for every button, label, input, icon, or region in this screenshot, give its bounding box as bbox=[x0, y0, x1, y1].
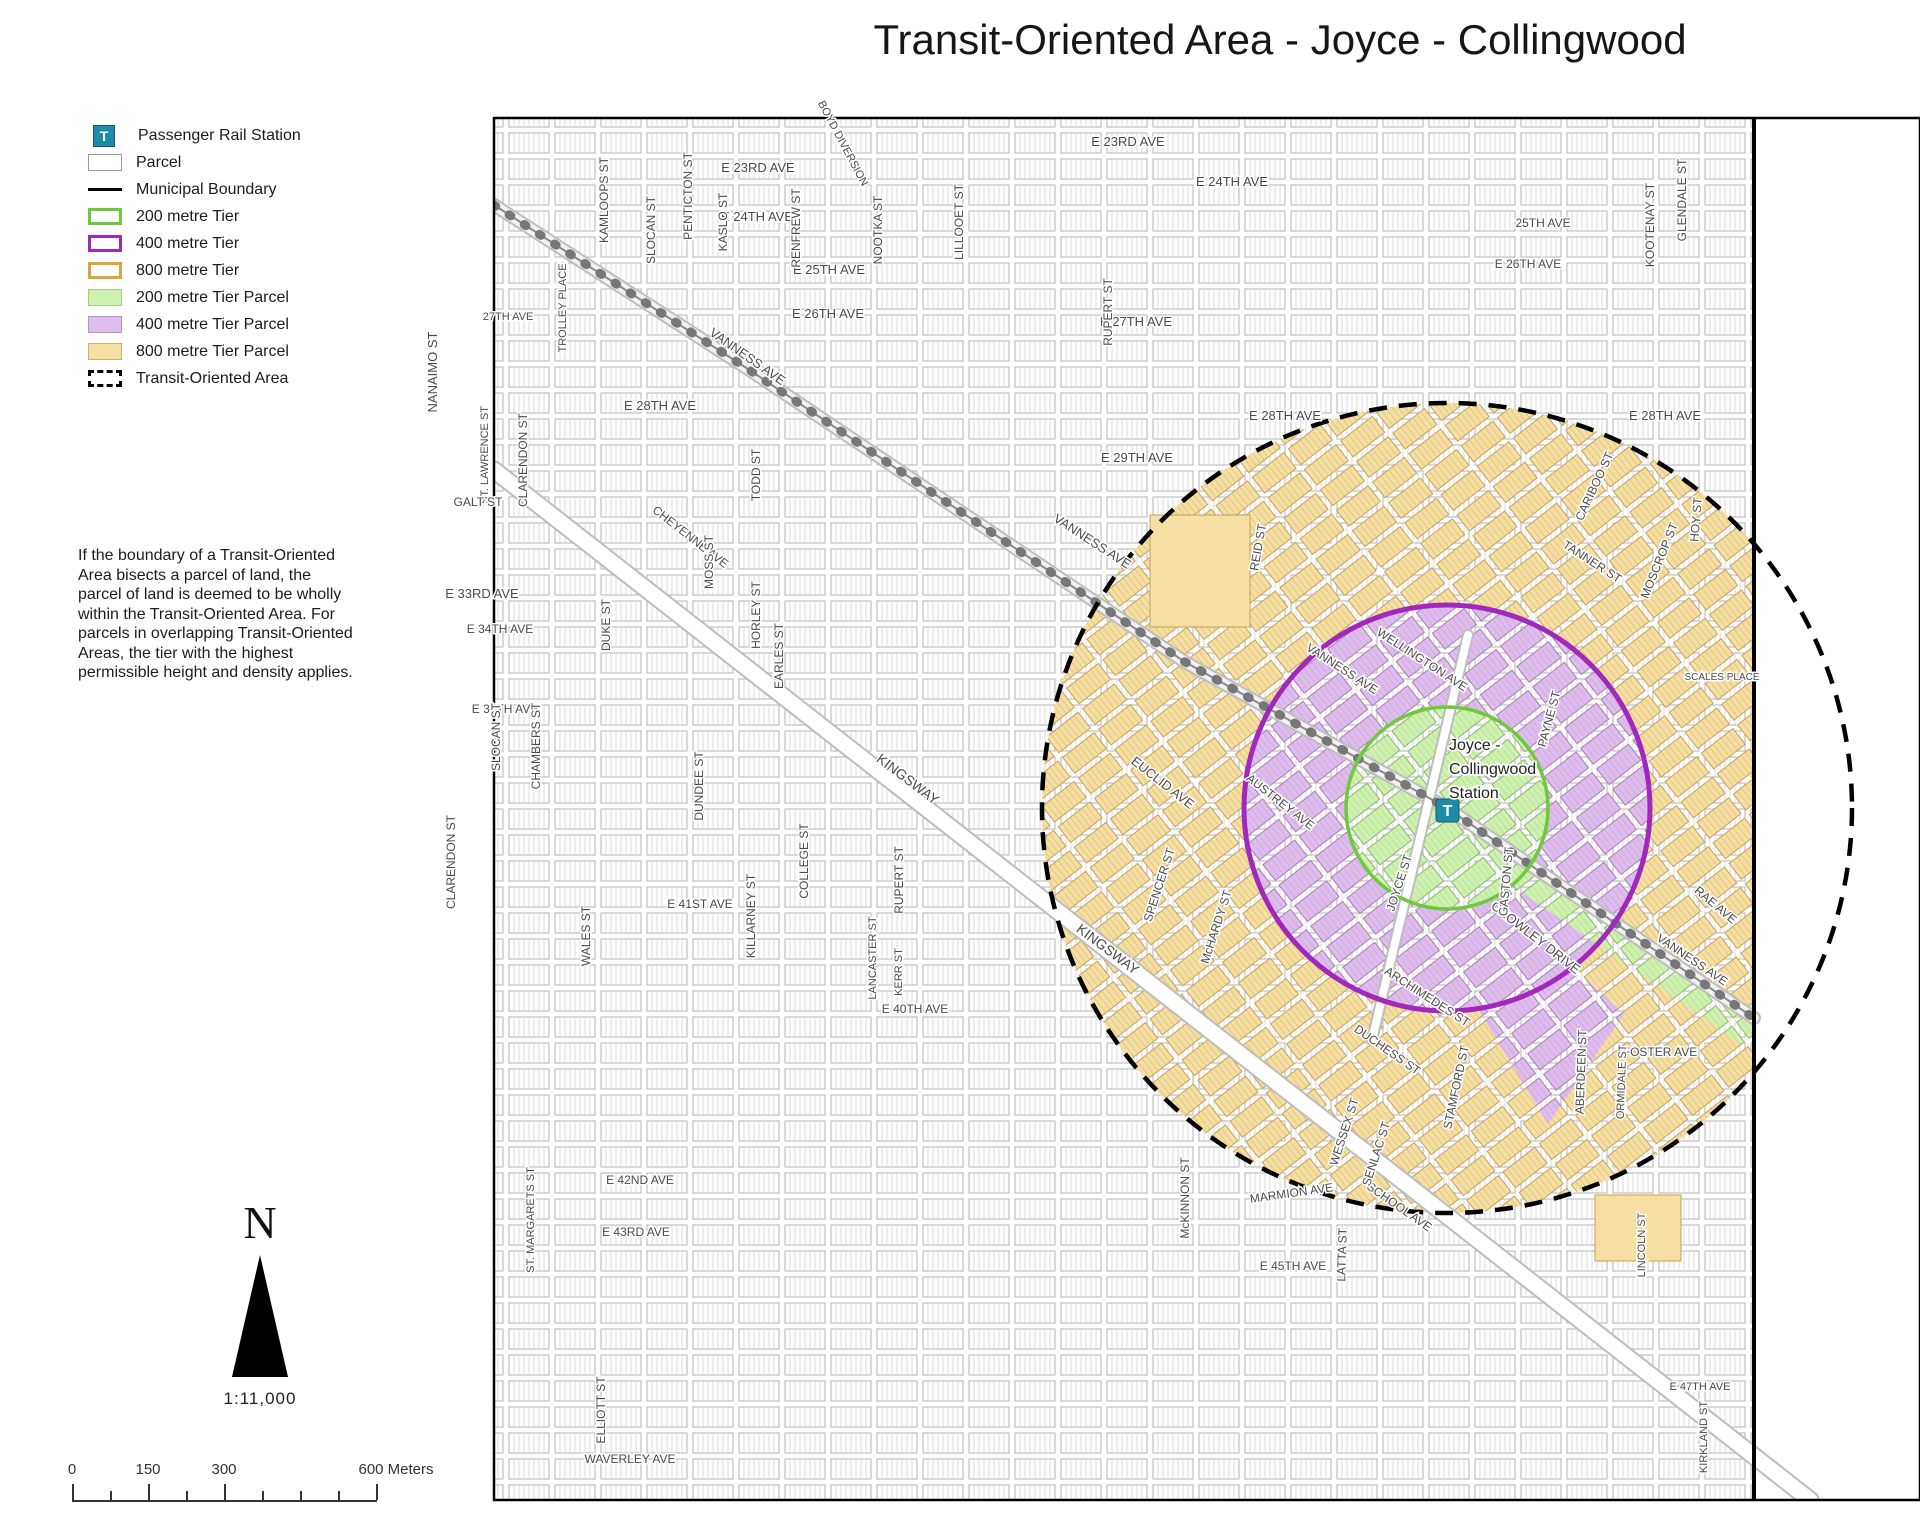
street-label: E 40TH AVE bbox=[882, 1002, 948, 1016]
street-label: E 23RD AVE bbox=[721, 160, 795, 175]
station-label-line: Collingwood bbox=[1449, 761, 1536, 778]
street-label: E 42ND AVE bbox=[606, 1173, 674, 1187]
street-label: PENTICTON ST bbox=[681, 151, 695, 239]
street-label: LILLOOET ST bbox=[952, 183, 966, 259]
street-label: 25TH AVE bbox=[1515, 216, 1570, 230]
street-label: FOSTER AVE bbox=[1623, 1045, 1697, 1059]
street-label: LANCASTER ST bbox=[867, 916, 879, 999]
street-label: ELLIOTT ST bbox=[594, 1376, 608, 1444]
street-label: WALES ST bbox=[579, 905, 593, 966]
street-label: E 28TH AVE bbox=[1629, 408, 1701, 423]
street-label: KIRKLAND ST bbox=[1698, 1401, 1710, 1473]
street-label: COLLEGE ST bbox=[797, 823, 811, 899]
street-label: KILLARNEY ST bbox=[744, 873, 758, 958]
street-label: E 24TH AVE bbox=[1196, 174, 1268, 189]
street-label: E 45TH AVE bbox=[1260, 1259, 1326, 1273]
street-label: LINCOLN ST bbox=[1636, 1212, 1648, 1277]
street-label: McKINNON ST bbox=[1178, 1157, 1192, 1239]
street-label: E 28TH AVE bbox=[1249, 408, 1321, 423]
street-label: SLOCAN ST bbox=[489, 702, 503, 771]
station-label-line: Joyce - bbox=[1449, 737, 1501, 754]
street-label: ST. MARGARETS ST bbox=[525, 1167, 537, 1273]
street-label: CHAMBERS ST bbox=[529, 702, 543, 789]
street-label: TROLLEY PLACE bbox=[557, 263, 569, 352]
street-label: E 26TH AVE bbox=[1495, 257, 1561, 271]
street-label: E 33RD AVE bbox=[445, 586, 519, 601]
street-label: E 26TH AVE bbox=[792, 306, 864, 321]
map-canvas[interactable]: E 23RD AVEE 23RD AVEE 24TH AVEE 24TH AVE… bbox=[0, 0, 1920, 1523]
street-label: GLENDALE ST bbox=[1675, 158, 1689, 241]
street-label: RUPERT ST bbox=[1101, 278, 1115, 346]
street-label: MOSS ST bbox=[702, 534, 716, 589]
street-label: CLARENDON ST bbox=[516, 412, 530, 507]
station-icon-letter: T bbox=[1443, 803, 1453, 820]
street-label: SCALES PLACE bbox=[1684, 672, 1759, 683]
station-label-line: Station bbox=[1449, 785, 1499, 802]
street-label: RENFREW ST bbox=[789, 188, 803, 268]
street-label: E 43RD AVE bbox=[602, 1225, 670, 1239]
street-label: E 34TH AVE bbox=[467, 622, 533, 636]
street-label: E 29TH AVE bbox=[1101, 450, 1173, 465]
street-label: HORLEY ST bbox=[749, 580, 763, 648]
street-label: E 41ST AVE bbox=[667, 897, 733, 911]
street-label: WAVERLEY AVE bbox=[585, 1452, 676, 1466]
street-label: KAMLOOPS ST bbox=[597, 156, 611, 243]
street-label: DUNDEE ST bbox=[692, 751, 706, 821]
street-label: GALT ST bbox=[454, 495, 504, 509]
street-label: E 25TH AVE bbox=[793, 262, 865, 277]
street-label: RUPERT ST bbox=[892, 846, 906, 914]
large-tan-parcel bbox=[1150, 515, 1250, 627]
street-label: EARLES ST bbox=[772, 622, 786, 689]
street-label: LATTA ST bbox=[1334, 1227, 1350, 1282]
street-label: E 28TH AVE bbox=[624, 398, 696, 413]
street-label: E 24TH AVE bbox=[721, 209, 793, 224]
street-label: KERR ST bbox=[893, 948, 905, 996]
street-label: 27TH AVE bbox=[483, 311, 534, 323]
street-label: NANAIMO ST bbox=[425, 331, 440, 412]
street-label: DUKE ST bbox=[599, 598, 613, 651]
street-label: KASLO ST bbox=[716, 192, 730, 251]
street-label: CLARENDON ST bbox=[444, 814, 458, 909]
street-label: NOOTKA ST bbox=[871, 195, 885, 264]
street-label: KOOTENAY ST bbox=[1643, 182, 1657, 267]
map-sheet: Transit-Oriented Area - Joyce - Collingw… bbox=[0, 0, 1920, 1523]
street-label: SLOCAN ST bbox=[644, 195, 658, 264]
street-label: E 47TH AVE bbox=[1670, 1381, 1731, 1393]
street-label: TODD ST bbox=[749, 448, 763, 501]
street-label: ABERDEEN ST bbox=[1573, 1029, 1590, 1115]
street-label: ST. LAWRENCE ST bbox=[479, 406, 491, 504]
street-label: E 23RD AVE bbox=[1091, 134, 1165, 149]
